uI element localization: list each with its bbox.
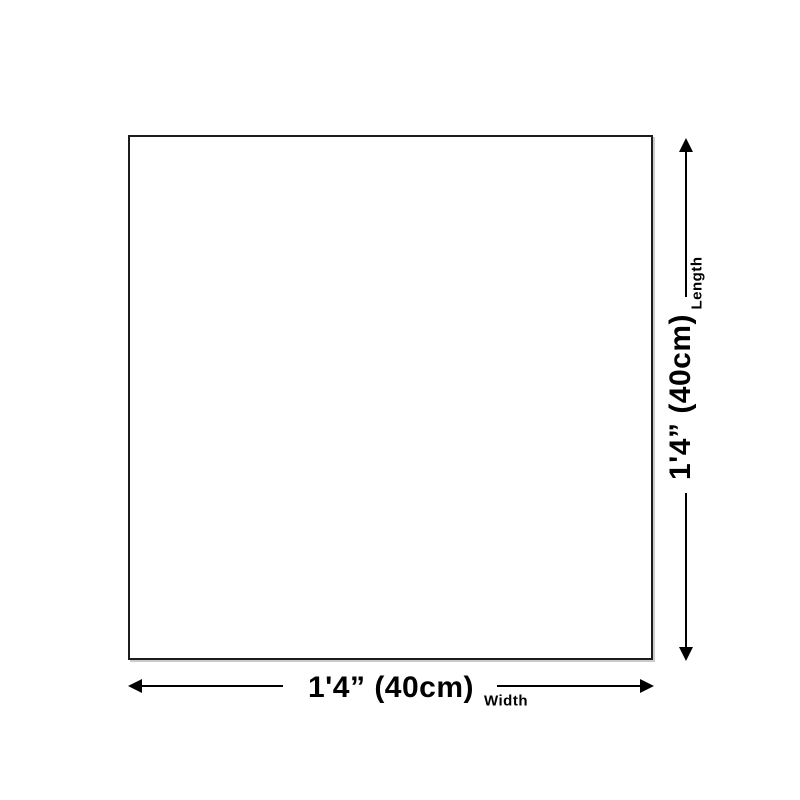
width-value: 1'4” (40cm)	[308, 671, 474, 705]
arrow-right-icon	[640, 679, 654, 693]
width-arrow-left-shaft	[140, 685, 283, 687]
product-outline-square	[128, 135, 653, 660]
length-axis-label: Length	[689, 257, 706, 310]
length-arrow-lower-shaft	[685, 493, 687, 648]
length-arrow-upper-shaft	[685, 150, 687, 297]
length-value: 1'4” (40cm)	[664, 314, 698, 480]
dimension-diagram: Length 1'4” (40cm) 1'4” (40cm) Width	[0, 0, 800, 800]
arrow-down-icon	[679, 647, 693, 661]
width-axis-label: Width	[484, 693, 528, 710]
width-arrow-right-shaft	[497, 685, 641, 687]
